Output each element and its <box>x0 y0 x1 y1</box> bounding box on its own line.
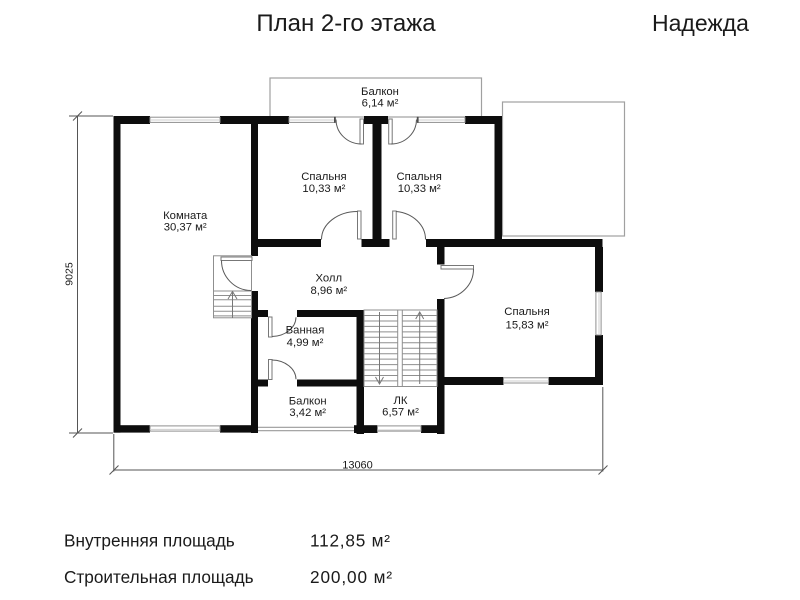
svg-text:3,42 м²: 3,42 м² <box>289 407 326 419</box>
svg-text:Балкон: Балкон <box>289 396 327 408</box>
svg-text:Ванная: Ванная <box>286 324 325 336</box>
svg-text:Холл: Холл <box>315 272 342 284</box>
svg-text:Комната: Комната <box>163 210 208 222</box>
svg-text:Внутренняя площадь: Внутренняя площадь <box>64 531 235 551</box>
svg-text:Спальня: Спальня <box>301 171 346 183</box>
svg-text:13060: 13060 <box>342 460 373 472</box>
svg-text:10,33 м²: 10,33 м² <box>302 183 345 195</box>
svg-text:Спальня: Спальня <box>504 306 549 318</box>
svg-text:Надежда: Надежда <box>652 10 749 36</box>
svg-text:4,99 м²: 4,99 м² <box>287 337 324 349</box>
svg-text:Спальня: Спальня <box>396 171 441 183</box>
svg-text:10,33 м²: 10,33 м² <box>398 183 441 195</box>
svg-text:9025: 9025 <box>64 262 76 286</box>
svg-text:8,96 м²: 8,96 м² <box>310 285 347 297</box>
svg-text:План 2-го этажа: План 2-го этажа <box>256 10 436 37</box>
svg-text:30,37 м²: 30,37 м² <box>164 222 207 234</box>
svg-text:15,83 м²: 15,83 м² <box>506 319 549 331</box>
svg-text:112,85 м²: 112,85 м² <box>310 531 391 551</box>
svg-text:Строительная площадь: Строительная площадь <box>64 567 254 587</box>
svg-text:6,57 м²: 6,57 м² <box>382 407 419 419</box>
svg-text:ЛК: ЛК <box>394 395 408 407</box>
svg-text:6,14 м²: 6,14 м² <box>362 98 399 110</box>
svg-text:200,00 м²: 200,00 м² <box>310 567 393 587</box>
svg-text:Балкон: Балкон <box>361 86 399 98</box>
